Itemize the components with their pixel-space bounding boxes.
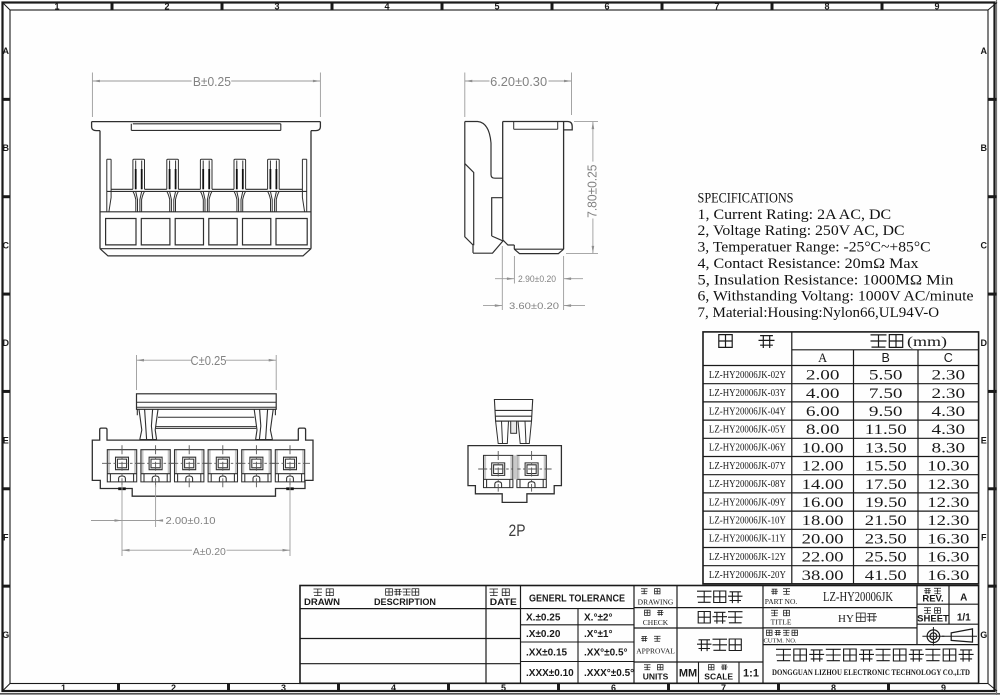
svg-text:B: B bbox=[981, 143, 988, 153]
svg-text:LZ-HY20006JK-07Y: LZ-HY20006JK-07Y bbox=[709, 461, 786, 472]
svg-text:4: 4 bbox=[384, 1, 389, 11]
svg-text:4.30: 4.30 bbox=[932, 404, 966, 420]
svg-text:2.00: 2.00 bbox=[806, 368, 840, 384]
svg-text:LZ-HY20006JK-05Y: LZ-HY20006JK-05Y bbox=[709, 425, 786, 436]
svg-text:8: 8 bbox=[824, 1, 829, 11]
svg-text:DRAWN: DRAWN bbox=[304, 597, 340, 608]
svg-text:LZ-HY20006JK-10Y: LZ-HY20006JK-10Y bbox=[709, 516, 786, 527]
svg-text:2: 2 bbox=[164, 1, 169, 11]
svg-text:3: 3 bbox=[274, 1, 279, 11]
svg-text:2: 2 bbox=[171, 683, 176, 693]
svg-text:6: 6 bbox=[604, 1, 609, 11]
svg-text:1:1: 1:1 bbox=[743, 668, 759, 680]
svg-text:DRAWING: DRAWING bbox=[638, 598, 674, 607]
svg-text:10.00: 10.00 bbox=[802, 440, 844, 456]
svg-text:2.30: 2.30 bbox=[932, 386, 966, 402]
svg-text:E: E bbox=[981, 435, 987, 445]
svg-text:.XX°±0.5°: .XX°±0.5° bbox=[584, 647, 628, 658]
svg-text:C: C bbox=[981, 241, 988, 251]
svg-text:25.50: 25.50 bbox=[865, 550, 907, 566]
svg-text:5: 5 bbox=[501, 683, 506, 693]
svg-text:A±0.20: A±0.20 bbox=[193, 546, 226, 558]
svg-text:1: 1 bbox=[54, 1, 59, 11]
svg-text:LZ-HY20006JK-03Y: LZ-HY20006JK-03Y bbox=[709, 388, 786, 399]
svg-text:(mm): (mm) bbox=[907, 335, 947, 350]
svg-text:7, Material:Housing:Nylon66,UL: 7, Material:Housing:Nylon66,UL94V-O bbox=[698, 305, 940, 321]
svg-text:B: B bbox=[882, 351, 890, 365]
svg-text:B: B bbox=[3, 143, 10, 153]
svg-text:16.30: 16.30 bbox=[927, 531, 969, 547]
svg-text:1: 1 bbox=[61, 683, 66, 693]
svg-text:.XXX±0.10: .XXX±0.10 bbox=[526, 668, 574, 679]
svg-text:.X±0.20: .X±0.20 bbox=[526, 629, 561, 640]
svg-text:17.50: 17.50 bbox=[865, 477, 907, 493]
svg-text:LZ-HY20006JK-20Y: LZ-HY20006JK-20Y bbox=[709, 570, 786, 581]
svg-text:APPROVAL: APPROVAL bbox=[636, 647, 675, 656]
svg-text:6, Withstanding Voltang: 1000V: 6, Withstanding Voltang: 1000V AC/minute bbox=[698, 289, 974, 305]
svg-text:12.00: 12.00 bbox=[802, 459, 844, 475]
svg-text:16.00: 16.00 bbox=[802, 495, 844, 511]
svg-text:E: E bbox=[3, 435, 9, 445]
svg-text:A: A bbox=[981, 46, 988, 56]
svg-text:DESCRIPTION: DESCRIPTION bbox=[374, 597, 436, 608]
svg-text:B±0.25: B±0.25 bbox=[193, 74, 231, 89]
svg-text:7.80±0.25: 7.80±0.25 bbox=[585, 165, 600, 218]
svg-text:6.00: 6.00 bbox=[806, 404, 840, 420]
svg-text:LZ-HY20006JK: LZ-HY20006JK bbox=[823, 589, 893, 604]
svg-text:G: G bbox=[2, 630, 9, 640]
svg-text:C±0.25: C±0.25 bbox=[191, 353, 227, 368]
svg-text:23.50: 23.50 bbox=[865, 531, 907, 547]
svg-text:7: 7 bbox=[714, 1, 719, 11]
svg-text:38.00: 38.00 bbox=[802, 568, 844, 584]
svg-text:SCALE: SCALE bbox=[704, 672, 733, 682]
svg-text:5, Insulation Resistance: 1000: 5, Insulation Resistance: 1000MΩ Min bbox=[698, 272, 955, 288]
svg-text:1/1: 1/1 bbox=[957, 613, 971, 624]
svg-text:2.30: 2.30 bbox=[932, 368, 966, 384]
svg-text:18.00: 18.00 bbox=[802, 513, 844, 529]
svg-text:LZ-HY20006JK-04Y: LZ-HY20006JK-04Y bbox=[709, 406, 786, 417]
svg-text:5: 5 bbox=[494, 1, 499, 11]
svg-text:6.20±0.30: 6.20±0.30 bbox=[490, 74, 547, 89]
svg-text:.XXX°±0.5°: .XXX°±0.5° bbox=[584, 668, 634, 679]
svg-text:F: F bbox=[981, 533, 987, 543]
svg-text:4.00: 4.00 bbox=[806, 386, 840, 402]
svg-text:GENERL TOLERANCE: GENERL TOLERANCE bbox=[529, 593, 625, 605]
svg-text:8.00: 8.00 bbox=[806, 422, 840, 438]
svg-text:C: C bbox=[3, 241, 10, 251]
svg-text:13.50: 13.50 bbox=[865, 440, 907, 456]
svg-text:16.30: 16.30 bbox=[927, 550, 969, 566]
svg-text:10.30: 10.30 bbox=[927, 459, 969, 475]
svg-text:2, Voltage Rating: 250V AC, DC: 2, Voltage Rating: 250V AC, DC bbox=[698, 223, 905, 239]
svg-text:A: A bbox=[3, 46, 10, 56]
svg-text:20.00: 20.00 bbox=[802, 531, 844, 547]
svg-text:SPECIFICATIONS: SPECIFICATIONS bbox=[698, 190, 794, 206]
svg-text:14.00: 14.00 bbox=[802, 477, 844, 493]
svg-text:7: 7 bbox=[721, 683, 726, 693]
svg-text:9: 9 bbox=[941, 683, 946, 693]
svg-text:12.30: 12.30 bbox=[927, 513, 969, 529]
svg-text:15.50: 15.50 bbox=[865, 459, 907, 475]
svg-text:A: A bbox=[960, 593, 967, 604]
svg-text:3.60±0.20: 3.60±0.20 bbox=[509, 301, 559, 312]
svg-text:12.30: 12.30 bbox=[927, 477, 969, 493]
svg-text:.XX±0.15: .XX±0.15 bbox=[526, 647, 568, 658]
svg-text:SHEET: SHEET bbox=[917, 614, 949, 625]
svg-text:41.50: 41.50 bbox=[865, 568, 907, 584]
svg-text:C: C bbox=[944, 351, 953, 365]
svg-text:3, Temperatuer Range: -25°C~+8: 3, Temperatuer Range: -25°C~+85°C bbox=[698, 240, 931, 256]
svg-text:D: D bbox=[3, 338, 10, 348]
svg-text:DATE: DATE bbox=[490, 597, 517, 608]
svg-text:3: 3 bbox=[281, 683, 286, 693]
svg-text:22.00: 22.00 bbox=[802, 550, 844, 566]
svg-text:LZ-HY20006JK-12Y: LZ-HY20006JK-12Y bbox=[709, 552, 786, 563]
svg-text:19.50: 19.50 bbox=[865, 495, 907, 511]
svg-text:TITLE: TITLE bbox=[771, 618, 792, 627]
svg-text:9: 9 bbox=[934, 1, 939, 11]
svg-text:12.30: 12.30 bbox=[927, 495, 969, 511]
svg-text:A: A bbox=[818, 351, 827, 365]
svg-text:F: F bbox=[3, 533, 9, 543]
svg-text:11.50: 11.50 bbox=[865, 422, 907, 438]
svg-text:4, Contact Resistance: 20mΩ Ma: 4, Contact Resistance: 20mΩ Max bbox=[698, 256, 920, 272]
svg-text:D: D bbox=[981, 338, 988, 348]
svg-text:LZ-HY20006JK-06Y: LZ-HY20006JK-06Y bbox=[709, 443, 786, 454]
svg-text:8.30: 8.30 bbox=[932, 440, 966, 456]
svg-text:1, Current Rating: 2A AC, DC: 1, Current Rating: 2A AC, DC bbox=[698, 207, 892, 223]
svg-text:X.±0.25: X.±0.25 bbox=[526, 612, 561, 623]
svg-text:LZ-HY20006JK-11Y: LZ-HY20006JK-11Y bbox=[709, 534, 786, 545]
svg-text:UNITS: UNITS bbox=[643, 672, 669, 682]
svg-text:2.90±0.20: 2.90±0.20 bbox=[518, 274, 556, 285]
svg-text:LZ-HY20006JK-02Y: LZ-HY20006JK-02Y bbox=[709, 370, 786, 381]
svg-text:2.00±0.10: 2.00±0.10 bbox=[166, 516, 216, 527]
svg-text:REV.: REV. bbox=[922, 594, 943, 605]
svg-text:X.°±2°: X.°±2° bbox=[584, 612, 613, 623]
svg-text:8: 8 bbox=[831, 683, 836, 693]
svg-text:5.50: 5.50 bbox=[869, 368, 903, 384]
svg-text:2P: 2P bbox=[509, 522, 526, 540]
svg-text:4.30: 4.30 bbox=[932, 422, 966, 438]
svg-text:7.50: 7.50 bbox=[869, 386, 903, 402]
svg-text:CHECK: CHECK bbox=[643, 618, 669, 627]
svg-text:CUTM. NO.: CUTM. NO. bbox=[763, 638, 796, 645]
svg-text:6: 6 bbox=[611, 683, 616, 693]
svg-text:DONGGUAN LIZHOU ELECTRONIC TEC: DONGGUAN LIZHOU ELECTRONIC TECHNOLOGY CO… bbox=[772, 667, 970, 677]
svg-text:HY: HY bbox=[838, 613, 854, 625]
svg-text:LZ-HY20006JK-09Y: LZ-HY20006JK-09Y bbox=[709, 497, 786, 508]
svg-text:21.50: 21.50 bbox=[865, 513, 907, 529]
svg-text:MM: MM bbox=[679, 668, 697, 680]
svg-text:LZ-HY20006JK-08Y: LZ-HY20006JK-08Y bbox=[709, 479, 786, 490]
svg-text:16.30: 16.30 bbox=[927, 568, 969, 584]
svg-text:4: 4 bbox=[391, 683, 396, 693]
svg-text:PART NO.: PART NO. bbox=[765, 597, 798, 606]
svg-text:9.50: 9.50 bbox=[869, 404, 903, 420]
svg-text:.X°±1°: .X°±1° bbox=[584, 629, 613, 640]
svg-text:G: G bbox=[980, 630, 987, 640]
